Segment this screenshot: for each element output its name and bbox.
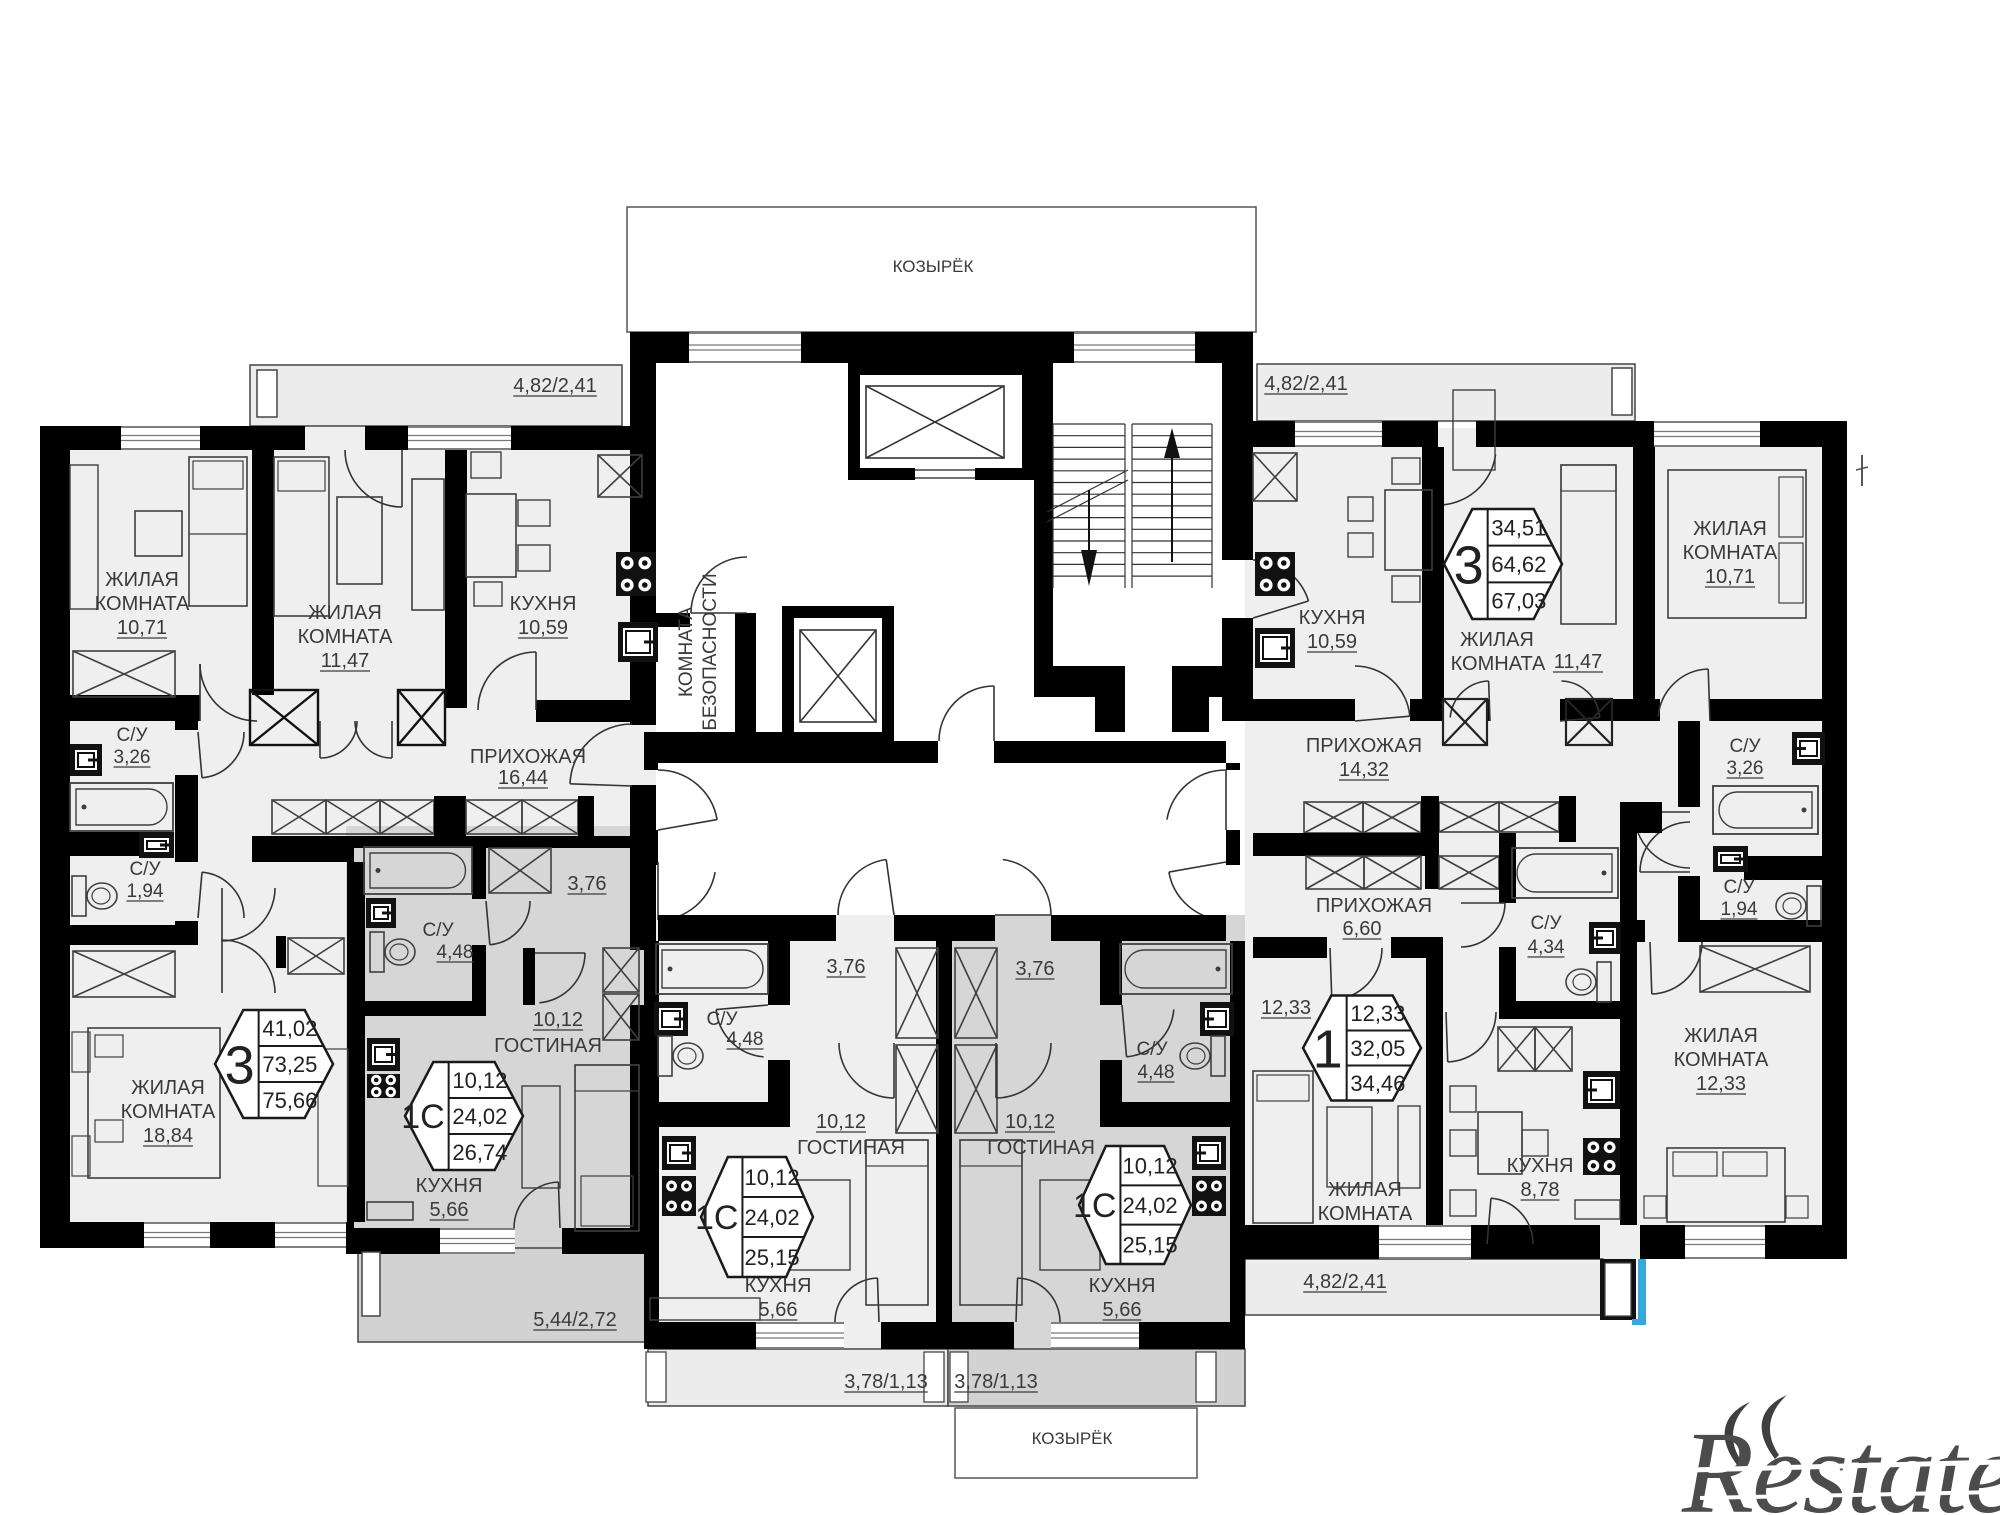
svg-text:3: 3 (225, 1035, 255, 1095)
svg-text:73,25: 73,25 (262, 1052, 317, 1077)
svg-text:КОМНАТА: КОМНАТА (676, 607, 697, 697)
svg-text:4,82/2,41: 4,82/2,41 (1303, 1271, 1386, 1293)
svg-text:БЕЗОПАСНОСТИ: БЕЗОПАСНОСТИ (700, 573, 721, 730)
svg-text:КОМНАТА: КОМНАТА (121, 1101, 216, 1123)
svg-text:С/У: С/У (1723, 877, 1755, 898)
svg-text:25,15: 25,15 (745, 1245, 800, 1270)
svg-text:4,82/2,41: 4,82/2,41 (513, 375, 596, 397)
svg-text:ПРИХОЖАЯ: ПРИХОЖАЯ (470, 746, 586, 768)
svg-text:11,47: 11,47 (321, 650, 370, 672)
svg-text:С/У: С/У (706, 1009, 738, 1030)
svg-text:11,47: 11,47 (1554, 651, 1603, 673)
svg-text:КУХНЯ: КУХНЯ (1507, 1155, 1574, 1177)
svg-text:1С: 1С (401, 1098, 444, 1136)
svg-text:10,12: 10,12 (452, 1068, 507, 1093)
svg-text:С/У: С/У (129, 859, 161, 880)
svg-text:ГОСТИНАЯ: ГОСТИНАЯ (797, 1137, 905, 1159)
svg-text:4,48: 4,48 (727, 1029, 764, 1050)
svg-text:10,12: 10,12 (533, 1009, 583, 1031)
svg-text:10,59: 10,59 (1307, 631, 1357, 653)
svg-text:КУХНЯ: КУХНЯ (510, 593, 577, 615)
svg-text:12,33: 12,33 (1350, 1001, 1405, 1026)
svg-text:1: 1 (1313, 1019, 1343, 1079)
svg-text:3,78/1,13: 3,78/1,13 (954, 1371, 1037, 1393)
svg-text:26,74: 26,74 (452, 1140, 507, 1165)
svg-text:10,12: 10,12 (745, 1165, 800, 1190)
svg-text:КОМНАТА: КОМНАТА (1318, 1203, 1413, 1225)
svg-text:10,59: 10,59 (518, 617, 568, 639)
svg-text:4,48: 4,48 (437, 942, 474, 963)
svg-text:ЖИЛАЯ: ЖИЛАЯ (1328, 1179, 1402, 1201)
svg-text:1С: 1С (1073, 1187, 1116, 1225)
svg-text:5,66: 5,66 (759, 1299, 798, 1321)
svg-text:32,05: 32,05 (1350, 1036, 1405, 1061)
svg-text:КОЗЫРЁК: КОЗЫРЁК (893, 257, 974, 276)
svg-text:ПРИХОЖАЯ: ПРИХОЖАЯ (1306, 735, 1422, 757)
svg-text:КОМНАТА: КОМНАТА (1683, 542, 1778, 564)
svg-text:34,51: 34,51 (1491, 515, 1546, 540)
svg-text:КОМНАТА: КОМНАТА (95, 593, 190, 615)
svg-text:41,02: 41,02 (262, 1016, 317, 1041)
svg-text:14,32: 14,32 (1339, 759, 1389, 781)
svg-text:ГОСТИНАЯ: ГОСТИНАЯ (494, 1035, 602, 1057)
svg-text:С/У: С/У (1136, 1039, 1168, 1060)
svg-text:4,48: 4,48 (1138, 1062, 1175, 1083)
svg-text:КОЗЫРЁК: КОЗЫРЁК (1032, 1429, 1113, 1448)
svg-text:4,82/2,41: 4,82/2,41 (1264, 373, 1347, 395)
svg-text:25,15: 25,15 (1123, 1232, 1178, 1257)
svg-text:10,12: 10,12 (1123, 1154, 1178, 1179)
svg-text:34,46: 34,46 (1350, 1071, 1405, 1096)
svg-text:КУХНЯ: КУХНЯ (745, 1275, 812, 1297)
svg-text:4,34: 4,34 (1528, 937, 1565, 958)
svg-text:С/У: С/У (1729, 736, 1761, 757)
svg-text:24,02: 24,02 (745, 1205, 800, 1230)
svg-text:24,02: 24,02 (1123, 1193, 1178, 1218)
svg-text:18,84: 18,84 (143, 1125, 193, 1147)
svg-text:3,76: 3,76 (568, 873, 607, 895)
svg-text:12,33: 12,33 (1696, 1073, 1746, 1095)
svg-text:5,66: 5,66 (430, 1199, 469, 1221)
svg-text:5,44/2,72: 5,44/2,72 (533, 1309, 616, 1331)
svg-text:1,94: 1,94 (127, 881, 164, 902)
svg-text:3,26: 3,26 (114, 747, 151, 768)
svg-text:КОМНАТА: КОМНАТА (1451, 653, 1546, 675)
svg-text:ЖИЛАЯ: ЖИЛАЯ (131, 1077, 205, 1099)
svg-text:С/У: С/У (422, 920, 454, 941)
svg-text:С/У: С/У (1530, 913, 1562, 934)
svg-text:ЖИЛАЯ: ЖИЛАЯ (1460, 629, 1534, 651)
svg-text:12,33: 12,33 (1261, 997, 1311, 1019)
svg-text:КОМНАТА: КОМНАТА (1674, 1049, 1769, 1071)
svg-text:КУХНЯ: КУХНЯ (1089, 1275, 1156, 1297)
svg-text:КУХНЯ: КУХНЯ (416, 1175, 483, 1197)
svg-text:1С: 1С (695, 1199, 738, 1237)
svg-text:3: 3 (1454, 535, 1484, 595)
svg-text:10,12: 10,12 (816, 1111, 866, 1133)
svg-text:ГОСТИНАЯ: ГОСТИНАЯ (987, 1137, 1095, 1159)
svg-text:3,76: 3,76 (827, 956, 866, 978)
svg-text:24,02: 24,02 (452, 1104, 507, 1129)
svg-text:16,44: 16,44 (498, 767, 548, 789)
svg-text:67,03: 67,03 (1491, 589, 1546, 614)
svg-text:ЖИЛАЯ: ЖИЛАЯ (1693, 518, 1767, 540)
svg-text:ПРИХОЖАЯ: ПРИХОЖАЯ (1316, 895, 1432, 917)
svg-text:10,12: 10,12 (1005, 1111, 1055, 1133)
svg-text:3,76: 3,76 (1016, 958, 1055, 980)
svg-text:5,66: 5,66 (1103, 1299, 1142, 1321)
svg-text:75,66: 75,66 (262, 1088, 317, 1113)
svg-text:8,78: 8,78 (1521, 1179, 1560, 1201)
svg-text:10,71: 10,71 (1705, 566, 1755, 588)
svg-text:ЖИЛАЯ: ЖИЛАЯ (1684, 1025, 1758, 1047)
svg-text:ЖИЛАЯ: ЖИЛАЯ (105, 569, 179, 591)
svg-text:КОМНАТА: КОМНАТА (298, 626, 393, 648)
svg-text:3,78/1,13: 3,78/1,13 (844, 1371, 927, 1393)
svg-text:1,94: 1,94 (1721, 899, 1758, 920)
svg-text:64,62: 64,62 (1491, 552, 1546, 577)
svg-text:6,60: 6,60 (1343, 918, 1382, 940)
svg-text:КУХНЯ: КУХНЯ (1299, 607, 1366, 629)
svg-text:10,71: 10,71 (117, 617, 167, 639)
svg-text:ЖИЛАЯ: ЖИЛАЯ (308, 602, 382, 624)
svg-text:С/У: С/У (116, 725, 148, 746)
svg-text:3,26: 3,26 (1727, 758, 1764, 779)
